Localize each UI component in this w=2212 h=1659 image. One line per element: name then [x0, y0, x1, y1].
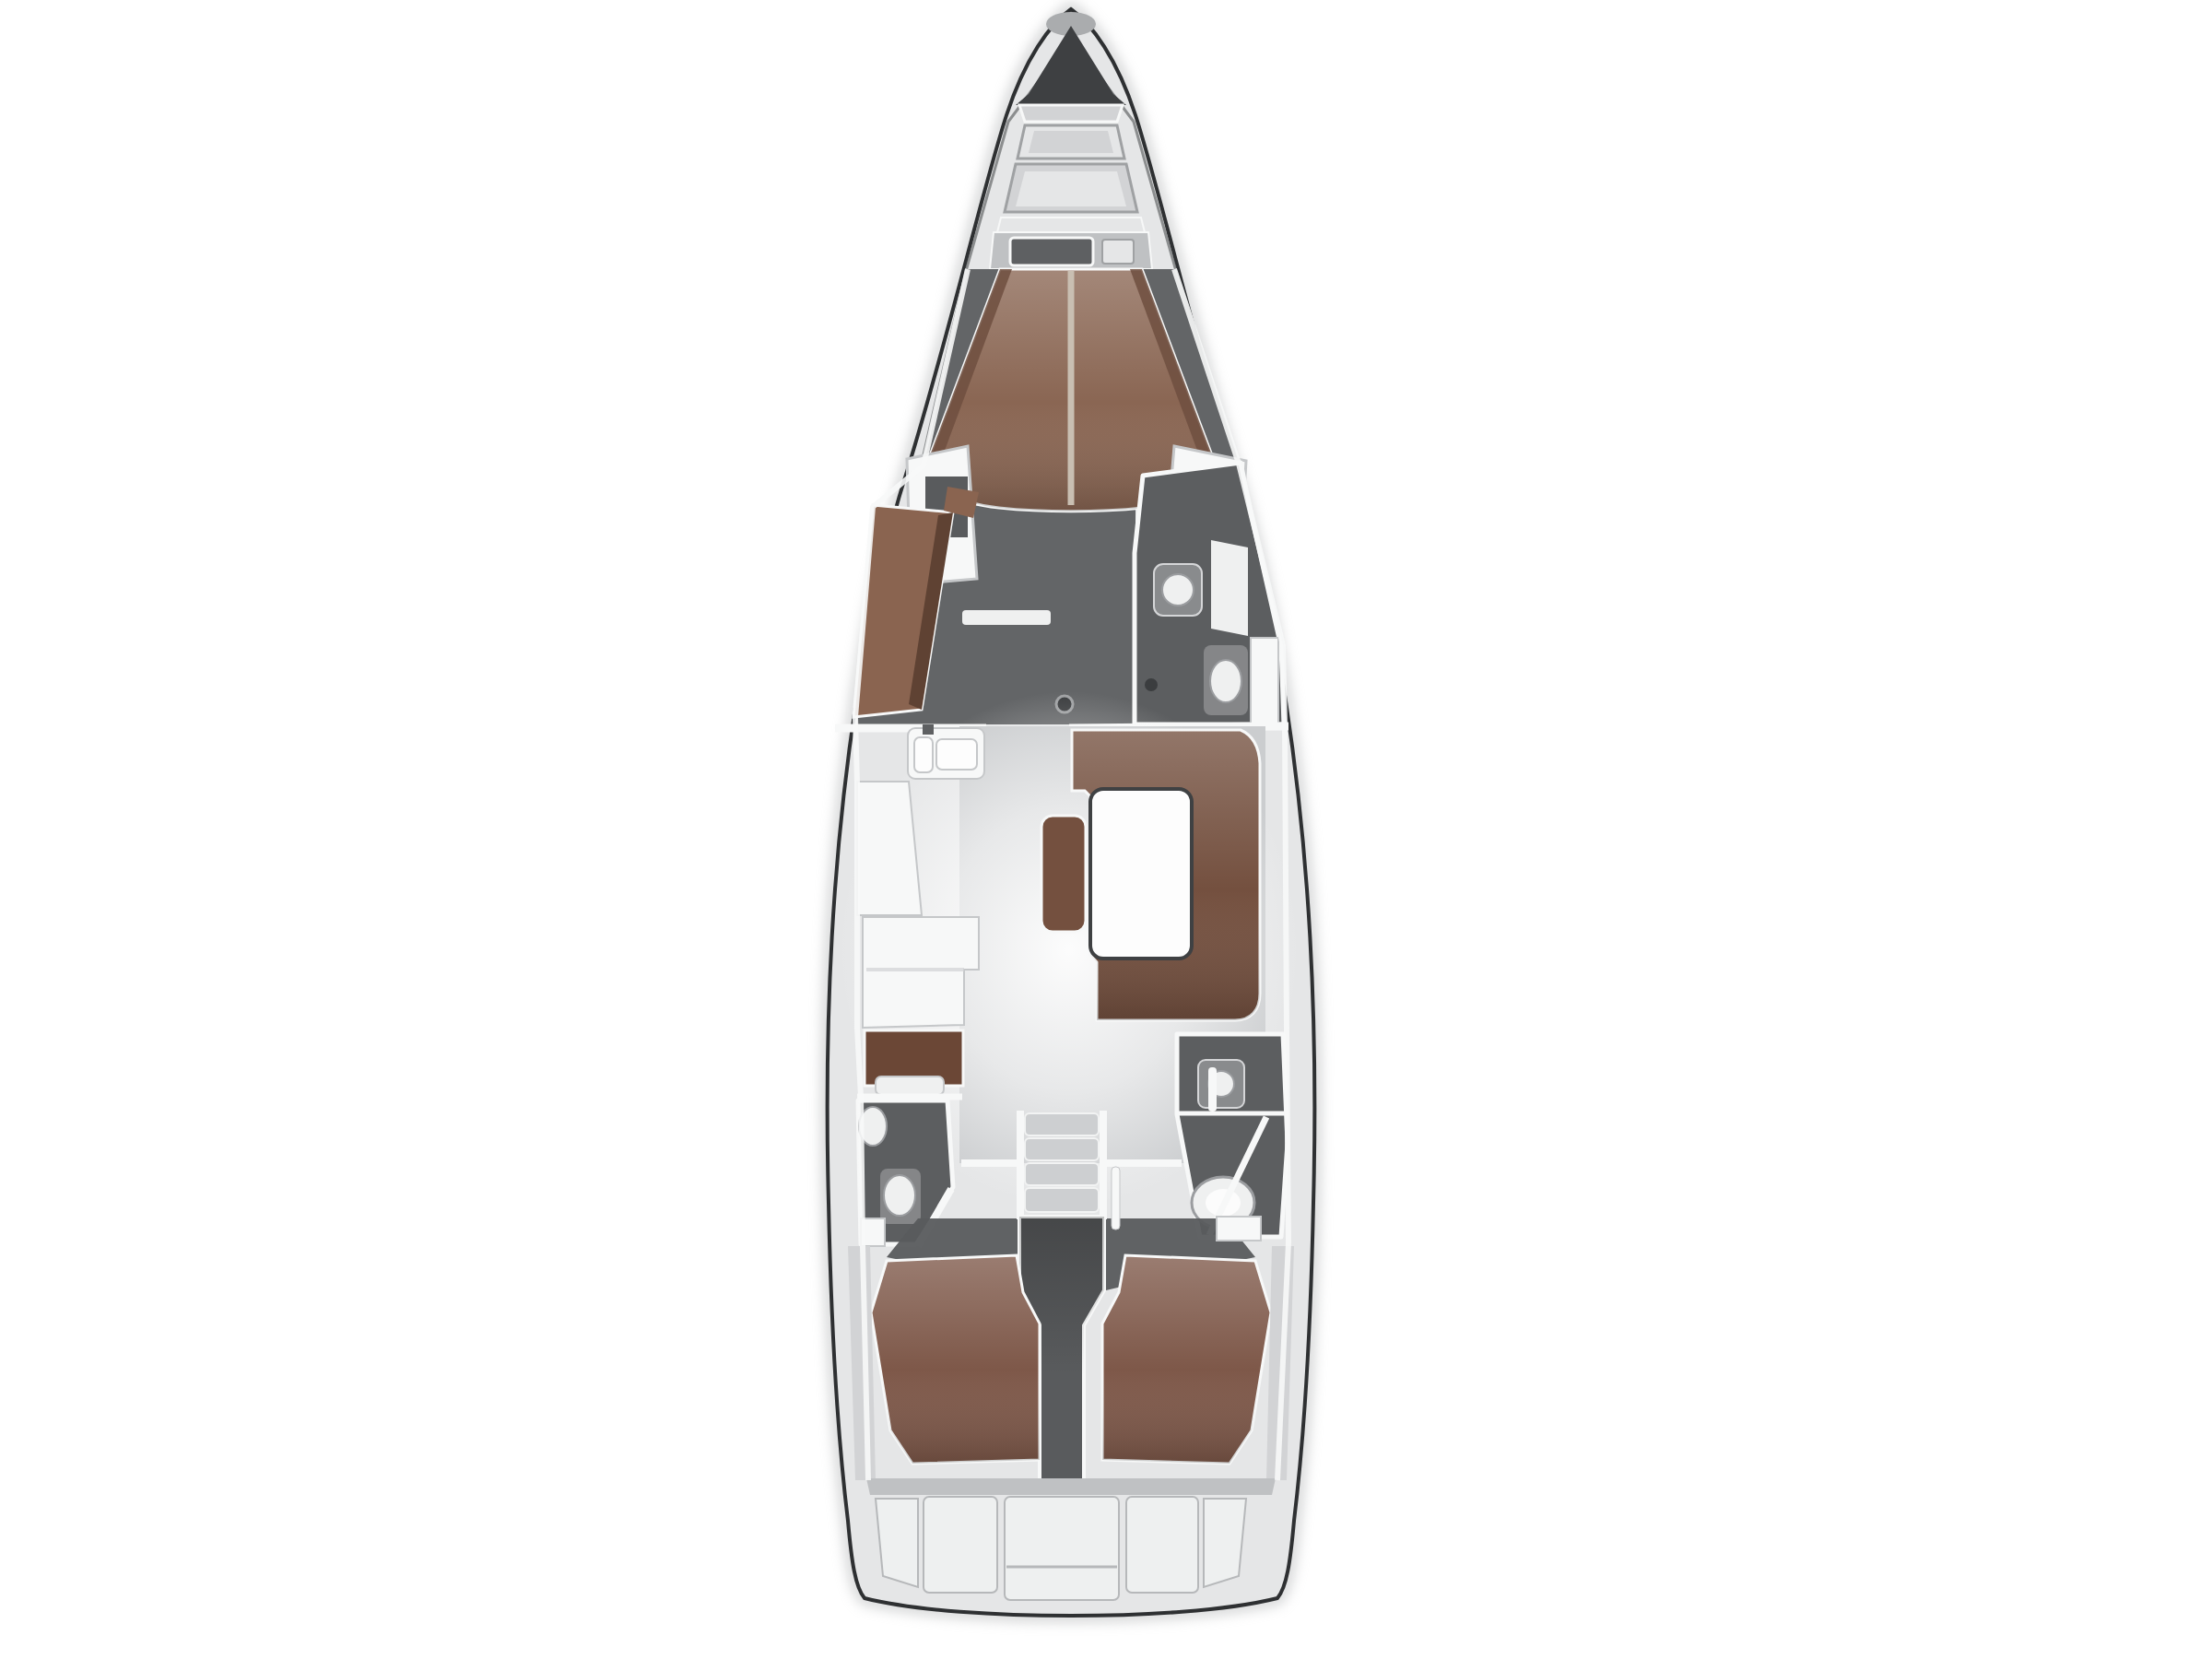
foredeck-hatch-inner-1	[1029, 131, 1113, 153]
dinette-table	[1090, 789, 1192, 959]
galley-faucet	[923, 724, 934, 735]
transom-panel-right-outer	[1204, 1499, 1246, 1587]
foredeck-hatch-inner-2	[1016, 171, 1126, 206]
yacht-floor-plan	[0, 0, 2212, 1659]
cockpit-band	[866, 1478, 1276, 1495]
nav-bench	[876, 1077, 944, 1095]
transom-panel-center	[1005, 1497, 1119, 1600]
forward-head-door	[1211, 540, 1248, 636]
companionway-step-4	[1025, 1188, 1099, 1212]
windlass-platform	[1019, 105, 1123, 122]
forward-head-drain	[1145, 678, 1158, 691]
galley-counter-block	[863, 917, 979, 1028]
companionway-step-3	[1025, 1163, 1099, 1185]
foredeck-step-band	[997, 218, 1145, 232]
dinette-center-bench	[1041, 816, 1086, 932]
forward-cabin-step	[962, 610, 1051, 625]
skylight-hatch-small	[1102, 240, 1134, 264]
forward-head-shelf	[1251, 638, 1278, 726]
port-aft-berth-shading	[871, 1255, 1040, 1464]
transom-panel-left	[924, 1497, 997, 1593]
yacht-plan-page	[0, 0, 2212, 1659]
starboard-aft-berth-shading	[1102, 1255, 1271, 1464]
starboard-aft-locker	[1217, 1217, 1261, 1241]
companionway-step-2	[1025, 1138, 1099, 1160]
starboard-aft-head-shower-column	[1208, 1067, 1217, 1112]
galley-sink-left	[914, 737, 933, 772]
companionway-step-1	[1025, 1113, 1099, 1135]
forward-head-sink	[1162, 574, 1194, 606]
port-aft-head-toilet	[884, 1175, 915, 1216]
forward-head-toilet	[1210, 660, 1241, 702]
transom-panel-right	[1126, 1497, 1198, 1593]
skylight-hatch	[1010, 238, 1093, 265]
galley-sink-right	[936, 739, 977, 770]
companionway-rail-right	[1100, 1111, 1107, 1219]
companionway-handrail	[1112, 1167, 1120, 1230]
transom-panel-left-outer	[876, 1499, 918, 1587]
companionway-rail-left	[1017, 1111, 1024, 1219]
